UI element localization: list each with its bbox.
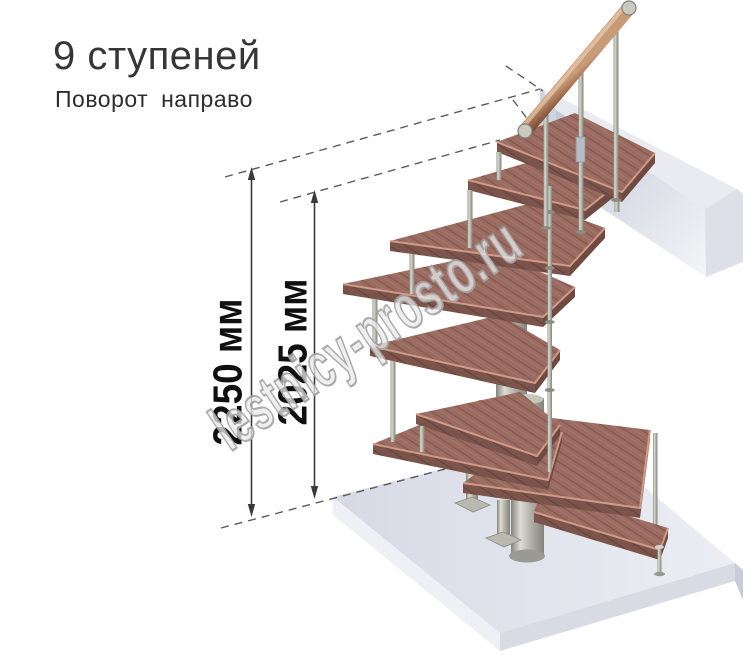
handrail-ferrule-top [622, 1, 636, 15]
extension-line-2250 [225, 89, 540, 177]
baluster-foot [576, 230, 586, 234]
baluster-1 [544, 110, 549, 228]
mini-post-cap [655, 545, 664, 549]
extension-line-slab-corner-b [513, 100, 529, 121]
rod-flange [545, 320, 555, 324]
mini-post-under-step-1 [658, 547, 662, 574]
extension-line-2025 [280, 140, 500, 202]
spacer-post [468, 190, 473, 248]
column-base [509, 550, 545, 563]
baluster-bracket [576, 137, 585, 162]
step-5 [370, 315, 560, 393]
dimension-label-to-top-platform: 2025 мм [270, 279, 317, 426]
spacer-post [391, 361, 396, 442]
rod-flange [545, 388, 555, 392]
floor-right-face [735, 563, 743, 600]
page-title: 9 ступеней [53, 34, 261, 78]
spacer-post [497, 152, 502, 180]
extension-line-slab-corner-a [506, 66, 543, 91]
dimension-label-total-height: 2250 мм [205, 299, 252, 446]
baluster-foot [611, 198, 621, 202]
arrowhead-down [311, 486, 318, 499]
baluster-3 [614, 24, 619, 200]
figure-canvas: 9 ступеней Поворот направо 2250 мм 2025 … [0, 0, 743, 655]
spacer-post [420, 426, 425, 452]
mini-post-base [654, 572, 665, 576]
rod-flange [545, 266, 555, 270]
baluster-foot [541, 226, 551, 230]
spacer-post [373, 299, 378, 346]
arrowhead-up [311, 190, 318, 203]
spacer-post [410, 254, 415, 294]
handrail-ferrule-bottom [518, 124, 532, 138]
arrowhead-down [248, 504, 255, 517]
page-subtitle: Поворот направо [55, 86, 253, 113]
